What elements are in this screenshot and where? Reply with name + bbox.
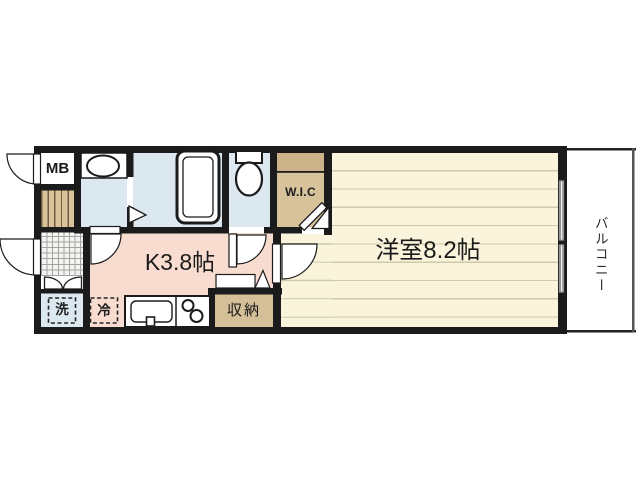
bath-folding-door (129, 206, 146, 223)
plan-linework (0, 0, 640, 480)
wash-basin (87, 156, 119, 177)
sink-faucet (147, 317, 155, 326)
storage-door-leaf (216, 275, 255, 289)
label-meter-box: MB (41, 153, 74, 184)
storage-door-swing (255, 271, 270, 289)
wic-hanger-line (277, 171, 324, 173)
floor-plan: MB W.I.C K3.8帖 洋室8.2帖 収納 洗 冷 バルコニー (0, 0, 640, 480)
label-western-room: 洋室8.2帖 (348, 236, 508, 265)
label-washer: 洗 (41, 293, 83, 327)
toilet-bowl (236, 163, 262, 196)
label-storage: 収納 (215, 294, 273, 327)
entry-double-door-left (45, 277, 63, 289)
windows (559, 180, 565, 293)
western-room-door-leaf (273, 244, 281, 283)
stove-burner-1 (183, 300, 194, 311)
meter-box-door-leaf (34, 154, 41, 184)
label-balcony: バルコニー (588, 199, 612, 311)
entrance-door-leaf (34, 239, 41, 275)
toilet-tank (236, 151, 262, 163)
washroom-door-leaf (90, 227, 120, 234)
label-wic: W.I.C (277, 180, 324, 204)
western-room-door-arc (282, 244, 317, 279)
stove-burner-2 (191, 310, 203, 322)
entrance-door-arc (0, 239, 36, 275)
toilet-door-arc (237, 235, 266, 264)
label-kitchen: K3.8帖 (120, 249, 240, 276)
meter-box-door-arc (7, 154, 37, 184)
entry-double-door-right (64, 277, 82, 289)
label-fridge: 冷 (90, 297, 118, 324)
washroom-door-arc (91, 234, 121, 264)
